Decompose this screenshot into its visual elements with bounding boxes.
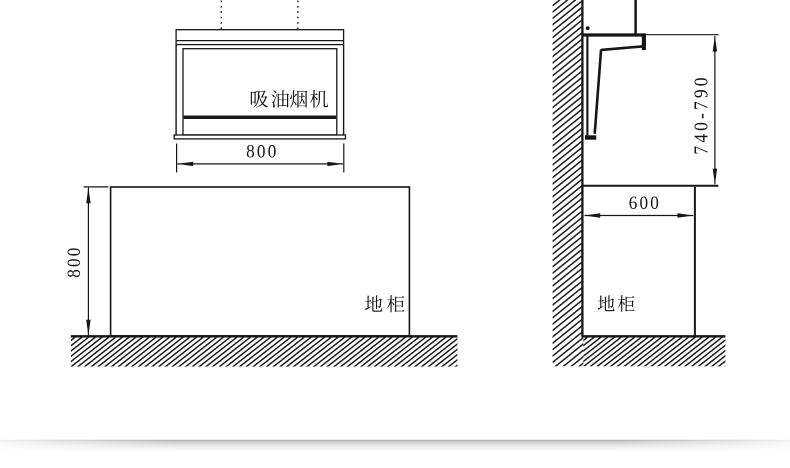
svg-text:740-790: 740-790 [691, 74, 713, 154]
svg-text:600: 600 [629, 192, 661, 213]
svg-text:800: 800 [63, 245, 84, 277]
svg-text:800: 800 [246, 141, 278, 162]
